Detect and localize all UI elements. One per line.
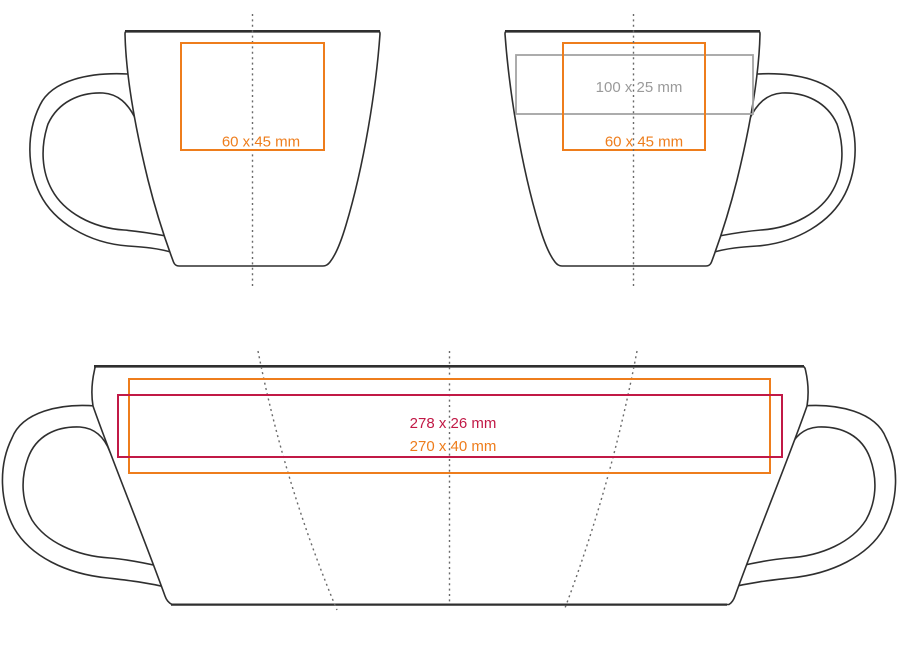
wrap-print-area-label-orange: 270 x 40 mm [410, 438, 497, 455]
side-view-group: 100 x 25 mm 60 x 45 mm [505, 14, 855, 287]
wrap-view-group: 278 x 26 mm 270 x 40 mm [2, 351, 895, 610]
side-print-area-label-orange: 60 x 45 mm [605, 134, 683, 151]
front-view-group: 60 x 45 mm [30, 14, 380, 287]
print-template-canvas: 60 x 45 mm 100 x 25 mm 60 x 45 mm 278 x … [0, 0, 900, 661]
mug-views-svg: 60 x 45 mm 100 x 25 mm 60 x 45 mm 278 x … [0, 0, 900, 661]
front-cup [30, 31, 380, 266]
front-print-area-label: 60 x 45 mm [222, 134, 300, 151]
side-print-area-label-gray: 100 x 25 mm [596, 79, 683, 96]
wrap-print-area-label-red: 278 x 26 mm [410, 415, 497, 432]
